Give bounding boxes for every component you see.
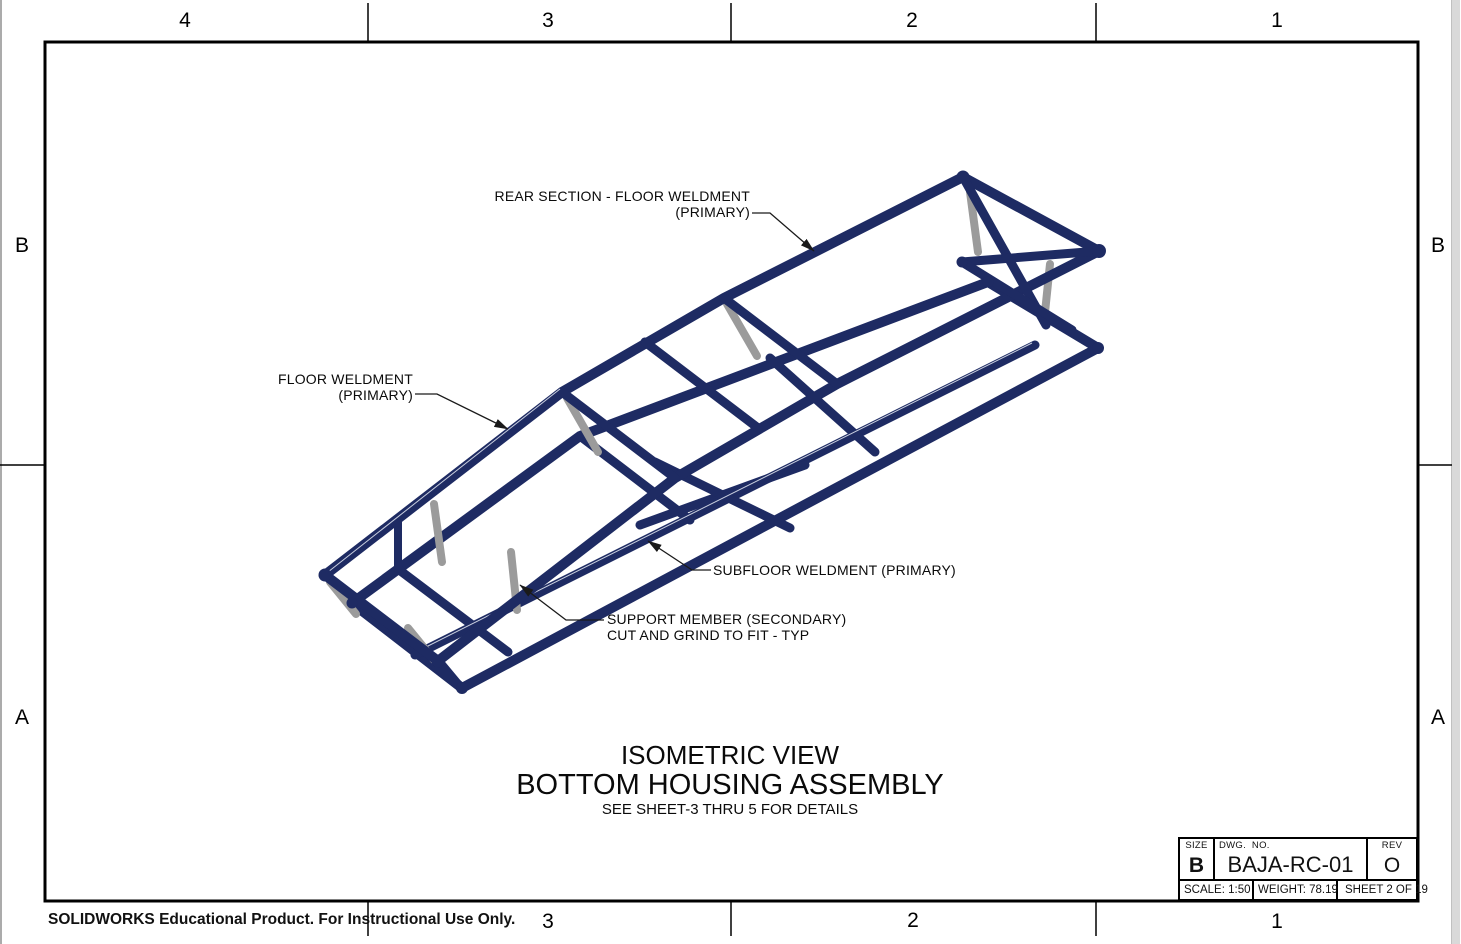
title-block-row-main: SIZE B DWG. NO. BAJA-RC-01 REV O	[1180, 839, 1416, 881]
dwg-no-label: DWG. NO.	[1219, 840, 1270, 851]
rev-value: O	[1368, 854, 1416, 878]
title-block-row-meta: SCALE: 1:50 WEIGHT: 78.19 SHEET 2 OF 19	[1180, 881, 1416, 899]
callout-support-member-line1: SUPPORT MEMBER (SECONDARY)	[607, 611, 907, 627]
sheet-value: SHEET 2 OF 19	[1345, 884, 1428, 896]
view-title-note: SEE SHEET-3 THRU 5 FOR DETAILS	[430, 801, 1030, 819]
zone-top-1: 1	[1271, 9, 1283, 33]
title-block: SIZE B DWG. NO. BAJA-RC-01 REV O SCALE: …	[1178, 837, 1418, 901]
drawing-sheet: 4 3 2 1 3 2 1 B A B A REAR SECTION - FLO…	[0, 0, 1461, 944]
scale-value: SCALE: 1:50	[1184, 884, 1250, 896]
scale-cell: SCALE: 1:50	[1180, 881, 1254, 899]
title-block-size-cell: SIZE B	[1180, 839, 1215, 879]
callout-support-member[interactable]: SUPPORT MEMBER (SECONDARY) CUT AND GRIND…	[607, 611, 907, 643]
zone-top-4: 4	[179, 9, 191, 33]
zone-right-b: B	[1431, 234, 1445, 258]
size-label: SIZE	[1180, 840, 1213, 851]
zone-bottom-3: 3	[542, 910, 554, 934]
title-block-dwg-cell: DWG. NO. BAJA-RC-01	[1215, 839, 1368, 879]
callout-subfloor-weldment[interactable]: SUBFLOOR WELDMENT (PRIMARY)	[713, 562, 1013, 578]
size-value: B	[1180, 854, 1213, 878]
rev-label: REV	[1368, 840, 1416, 851]
zone-top-3: 3	[542, 9, 554, 33]
floor-weldment-tubes	[325, 177, 1099, 686]
zone-right-a: A	[1431, 706, 1445, 730]
zone-bottom-1: 1	[1271, 910, 1283, 934]
callout-floor-weldment-line1: FLOOR WELDMENT	[213, 371, 413, 387]
callout-floor-weldment[interactable]: FLOOR WELDMENT (PRIMARY)	[213, 371, 413, 403]
title-block-rev-cell: REV O	[1368, 839, 1416, 879]
zone-top-2: 2	[906, 9, 918, 33]
weight-cell: WEIGHT: 78.19	[1254, 881, 1338, 899]
callout-rear-section-line2: (PRIMARY)	[450, 204, 750, 220]
view-title-secondary: BOTTOM HOUSING ASSEMBLY	[430, 769, 1030, 801]
zone-left-b: B	[15, 234, 29, 258]
callout-rear-section[interactable]: REAR SECTION - FLOOR WELDMENT (PRIMARY)	[450, 188, 750, 220]
sheet-cell: SHEET 2 OF 19	[1338, 881, 1416, 899]
view-title-primary: ISOMETRIC VIEW	[430, 741, 1030, 769]
view-title: ISOMETRIC VIEW BOTTOM HOUSING ASSEMBLY S…	[430, 741, 1030, 819]
solidworks-educational-notice: SOLIDWORKS Educational Product. For Inst…	[48, 911, 515, 929]
weight-value: WEIGHT: 78.19	[1258, 884, 1338, 896]
callout-support-member-line2: CUT AND GRIND TO FIT - TYP	[607, 627, 907, 643]
callout-floor-weldment-line2: (PRIMARY)	[213, 387, 413, 403]
zone-bottom-2: 2	[907, 909, 919, 933]
zone-left-a: A	[15, 706, 29, 730]
callout-rear-section-line1: REAR SECTION - FLOOR WELDMENT	[450, 188, 750, 204]
dwg-no-value: BAJA-RC-01	[1215, 852, 1366, 878]
